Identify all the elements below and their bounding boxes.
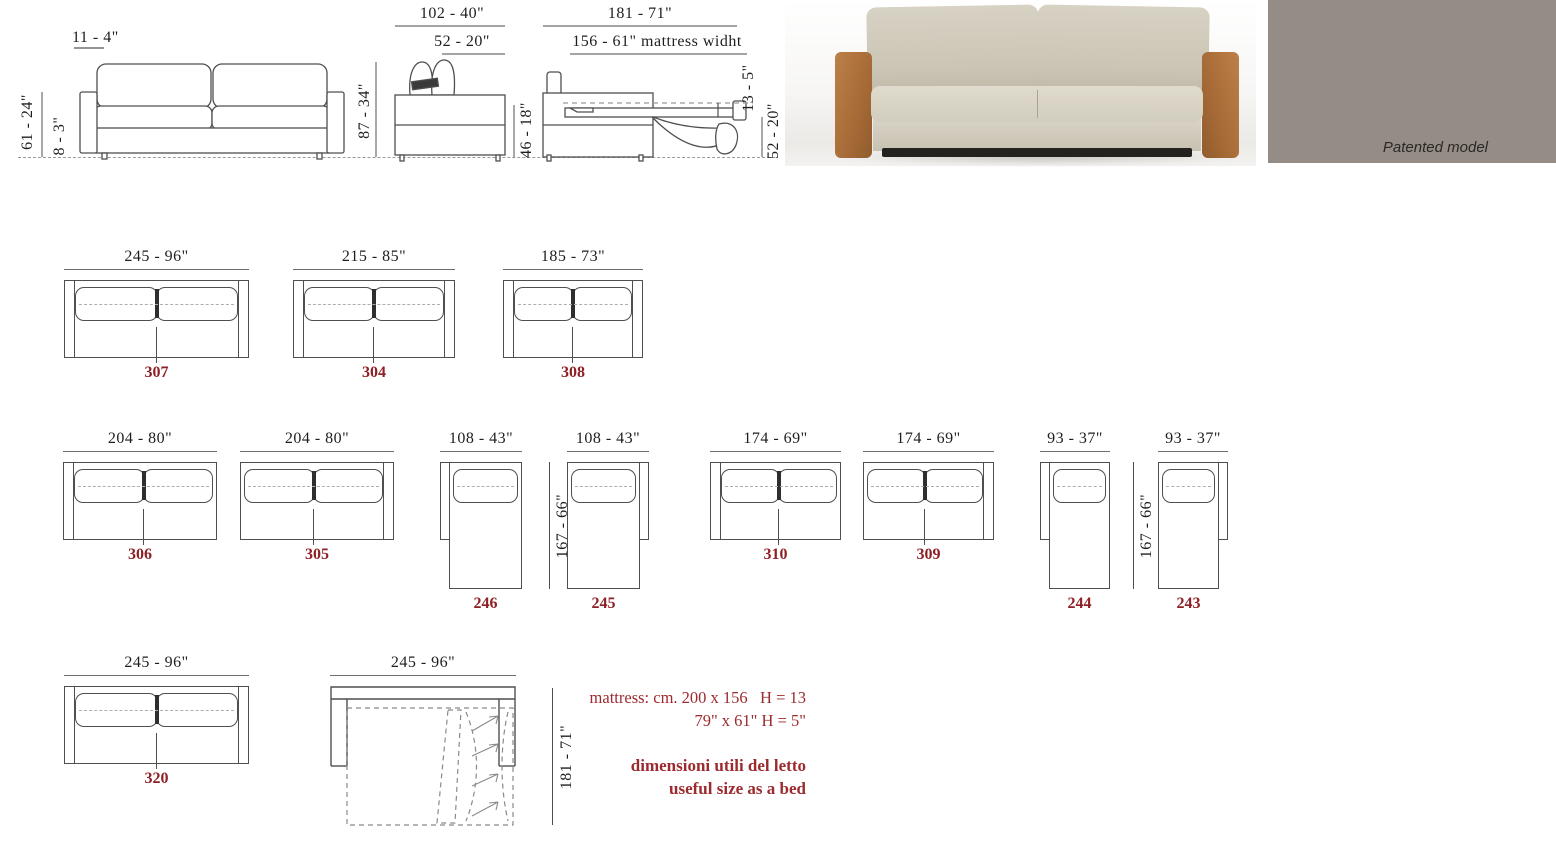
total-height-dimension: 61 - 24" — [19, 94, 36, 150]
seat-split-line — [313, 509, 314, 545]
unit-body — [293, 280, 455, 358]
seat-split-line — [778, 509, 779, 545]
width-dimension-label: 245 - 96" — [39, 654, 274, 672]
right-arm-outline — [327, 92, 344, 153]
sofa-leg — [496, 155, 500, 161]
top-view-drawing — [440, 462, 522, 589]
seat-split-line — [924, 509, 925, 545]
chaise-depth-dimension-line — [549, 462, 550, 589]
seat-cushion-outline — [212, 106, 330, 130]
notes-spacer — [520, 732, 806, 754]
seat-split-line — [156, 327, 157, 363]
chaise-depth-dimension-line — [1133, 462, 1134, 589]
unit-body — [64, 280, 249, 358]
photo-right-arm-leather — [1202, 52, 1239, 158]
width-dimension-line — [863, 451, 994, 452]
cushion-dash-line — [248, 486, 379, 487]
mattress-thickness-dimension: 13 - 5" — [740, 64, 757, 111]
width-dimension-line — [710, 451, 841, 452]
sofa-base-outline — [96, 128, 329, 153]
model-number: 307 — [64, 364, 249, 382]
total-height-dimension: 87 - 34" — [356, 83, 373, 139]
mattress-notes: mattress: cm. 200 x 156 H = 13 79" x 61"… — [520, 686, 806, 800]
bed-height-dimension: 52 - 20" — [765, 103, 782, 159]
diagram-unit-245: 108 - 43"245 — [567, 430, 649, 615]
product-photo — [785, 0, 1256, 166]
photo-seat-seam — [1037, 90, 1038, 118]
cushion-dash-line — [79, 710, 234, 711]
backrest-profile — [547, 72, 561, 95]
open-bed-width-dimension: 245 - 96" — [330, 654, 516, 672]
cushion-area — [453, 469, 518, 503]
model-number: 305 — [240, 546, 394, 564]
cushion-area — [74, 469, 213, 503]
width-dimension-label: 215 - 85" — [268, 248, 480, 266]
arm-strip — [64, 462, 74, 540]
mattress-size-cm: mattress: cm. 200 x 156 H = 13 — [520, 686, 806, 709]
sofa-leg — [317, 153, 322, 159]
body-height-dimension: 46 - 18" — [518, 102, 535, 158]
patented-model-label: Patented model — [1383, 139, 1488, 156]
arm-strip — [983, 462, 993, 540]
unit-body — [240, 462, 394, 540]
seat-split-line — [572, 327, 573, 363]
cushion-dash-line — [871, 486, 979, 487]
model-number: 309 — [863, 546, 994, 564]
sofa-leg — [639, 155, 643, 161]
cushion-area — [571, 469, 636, 503]
cushion-dash-line — [79, 304, 234, 305]
model-number: 306 — [63, 546, 217, 564]
model-number: 320 — [64, 770, 249, 788]
back-cushion-outline — [97, 64, 211, 108]
fold-direction-arrow — [472, 716, 498, 731]
width-dimension-label: 185 - 73" — [478, 248, 668, 266]
bed-size-note-en: useful size as a bed — [520, 777, 806, 800]
arm-strip — [65, 280, 75, 358]
top-view-drawing — [567, 462, 649, 589]
unit-body — [567, 462, 640, 589]
width-dimension-line — [64, 269, 249, 270]
cushion-area — [304, 287, 444, 321]
bed-size-note-it: dimensioni utili del letto — [520, 754, 806, 777]
top-view-drawing — [710, 462, 841, 540]
width-dimension-label: 108 - 43" — [415, 430, 547, 448]
diagram-unit-307: 245 - 96"307 — [64, 248, 249, 384]
seat-depth-dimension: 52 - 20" — [434, 33, 490, 50]
dimension-line — [330, 675, 516, 676]
width-dimension-line — [240, 451, 394, 452]
width-dimension-label: 245 - 96" — [39, 248, 274, 266]
width-dimension-line — [567, 451, 649, 452]
diagram-unit-306: 204 - 80"306 — [63, 430, 217, 566]
arm-strip — [65, 686, 75, 764]
unit-body — [1158, 462, 1219, 589]
cushion-area — [75, 287, 238, 321]
model-number: 245 — [567, 595, 640, 613]
mattress-width-dimension: 156 - 61" mattress widht — [572, 33, 742, 50]
width-dimension-label: 204 - 80" — [215, 430, 419, 448]
width-dimension-label: 108 - 43" — [542, 430, 674, 448]
width-dimension-label: 174 - 69" — [838, 430, 1019, 448]
open-depth-dimension: 181 - 71" — [608, 5, 672, 22]
top-view-drawing — [63, 462, 217, 540]
cushion-dash-line — [308, 304, 440, 305]
top-view-drawing — [1158, 462, 1228, 589]
sofa-leg — [102, 153, 107, 159]
front-view-drawing: 11 - 4" 61 - 24" 8 - 3" — [0, 0, 360, 170]
folded-bedding-dashed-curve — [466, 712, 477, 821]
top-view-drawing — [1040, 462, 1110, 589]
width-dimension-line — [64, 675, 249, 676]
seat-split-line — [373, 327, 374, 363]
top-view-drawing — [863, 462, 994, 540]
diagram-unit-309: 174 - 69"309 — [863, 430, 994, 566]
unit-body — [1049, 462, 1110, 589]
arm-strip — [632, 280, 642, 358]
cushion-dash-line — [575, 486, 632, 487]
model-number: 246 — [449, 595, 522, 613]
diagram-unit-246: 108 - 43"246 — [440, 430, 522, 615]
width-dimension-label: 93 - 37" — [1133, 430, 1253, 448]
cushion-area — [75, 693, 238, 727]
cushion-dash-line — [725, 486, 833, 487]
left-arm-outline — [80, 92, 97, 153]
base-height-dimension: 8 - 3" — [51, 117, 68, 156]
seat-split-line — [156, 733, 157, 769]
arm-strip — [238, 686, 248, 764]
diagram-unit-320: 245 - 96"320 — [64, 654, 249, 790]
diagram-unit-244: 93 - 37"244 — [1040, 430, 1110, 615]
folding-foot — [716, 123, 738, 154]
cushion-dash-line — [457, 486, 514, 487]
arm-strip — [504, 280, 514, 358]
unit-body — [64, 686, 249, 764]
seat-split-line — [143, 509, 144, 545]
cushion-area — [1162, 469, 1215, 503]
model-number: 304 — [293, 364, 455, 382]
photo-back-cushion — [1036, 5, 1210, 96]
arm-strip — [711, 462, 721, 540]
arm-strip — [238, 280, 248, 358]
chaise-depth-dimension: 167 - 66" — [1138, 481, 1156, 571]
folded-bedding-dashed-shape — [437, 710, 461, 823]
depth-dimension: 102 - 40" — [420, 5, 484, 22]
photo-back-cushion — [866, 5, 1040, 96]
arm-strip — [1218, 462, 1228, 540]
cushion-dash-line — [78, 486, 209, 487]
model-number: 308 — [503, 364, 643, 382]
photo-sofa-plinth — [882, 148, 1192, 157]
model-number: 310 — [710, 546, 841, 564]
model-number: 243 — [1158, 595, 1219, 613]
width-dimension-line — [1158, 451, 1228, 452]
dimension-sheet: 11 - 4" 61 - 24" 8 - 3" 102 - 40" 52 - 2… — [0, 0, 1556, 848]
unit-body — [503, 280, 643, 358]
width-dimension-line — [440, 451, 522, 452]
diagram-unit-305: 204 - 80"305 — [240, 430, 394, 566]
top-view-drawing — [64, 686, 249, 764]
fold-direction-arrow — [472, 802, 498, 816]
width-dimension-label: 93 - 37" — [1015, 430, 1135, 448]
width-dimension-label: 204 - 80" — [38, 430, 242, 448]
unit-body — [449, 462, 522, 589]
unit-body — [710, 462, 841, 540]
diagram-unit-308: 185 - 73"308 — [503, 248, 643, 384]
arm-width-dimension: 11 - 4" — [72, 29, 119, 46]
top-view-drawing — [503, 280, 643, 358]
width-dimension-line — [503, 269, 643, 270]
photo-left-arm-leather — [835, 52, 872, 158]
top-view-drawing — [64, 280, 249, 358]
bed-open-side-view-drawing: 181 - 71" 156 - 61" mattress widht 13 - … — [535, 0, 785, 170]
photo-seat-cushion — [871, 86, 1203, 122]
patented-model-panel: Patented model — [1268, 0, 1556, 163]
unit-body — [63, 462, 217, 540]
width-dimension-line — [63, 451, 217, 452]
side-view-drawing: 102 - 40" 52 - 20" 87 - 34" 46 - 18" — [350, 0, 535, 170]
cushion-area — [1053, 469, 1106, 503]
sofa-leg — [547, 155, 551, 161]
arm-strip — [383, 462, 393, 540]
diagram-unit-304: 215 - 85"304 — [293, 248, 455, 384]
model-number: 244 — [1049, 595, 1110, 613]
cushion-area — [867, 469, 983, 503]
sofa-leg — [400, 155, 404, 161]
arm-strip — [444, 280, 454, 358]
back-cushion-outline — [213, 64, 327, 108]
cushion-dash-line — [518, 304, 628, 305]
mattress-size-in: 79" x 61" H = 5" — [520, 709, 806, 732]
photo-sofa-base — [873, 118, 1201, 151]
diagram-unit-310: 174 - 69"310 — [710, 430, 841, 566]
cushion-area — [244, 469, 383, 503]
back-cushion-profile — [432, 60, 455, 95]
arm-strip — [639, 462, 649, 540]
cushion-area — [514, 287, 632, 321]
seat-cushion-outline — [94, 106, 212, 130]
cushion-dash-line — [1166, 486, 1211, 487]
cushion-dash-line — [1057, 486, 1102, 487]
diagram-unit-243: 93 - 37"243 — [1158, 430, 1228, 615]
width-dimension-line — [1040, 451, 1110, 452]
unit-body — [863, 462, 994, 540]
width-dimension-line — [293, 269, 455, 270]
arm-strip — [294, 280, 304, 358]
top-view-drawing — [293, 280, 455, 358]
cushion-area — [721, 469, 837, 503]
top-view-drawing — [240, 462, 394, 540]
